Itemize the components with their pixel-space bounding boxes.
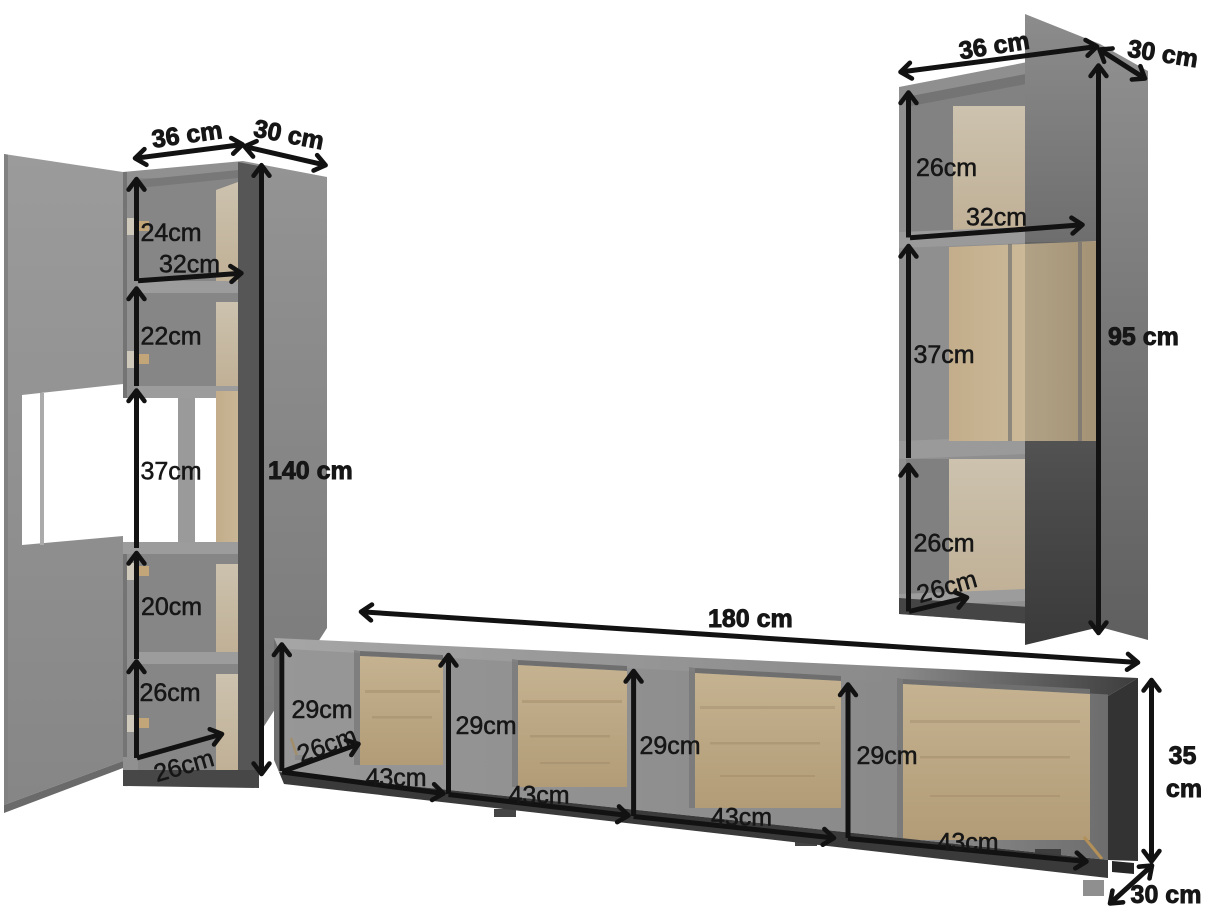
svg-text:cm: cm (1166, 775, 1202, 803)
svg-text:30 cm: 30 cm (1131, 881, 1202, 909)
svg-text:35: 35 (1169, 742, 1197, 770)
svg-text:37cm: 37cm (141, 458, 202, 486)
svg-text:43cm: 43cm (938, 829, 999, 857)
svg-text:26cm: 26cm (140, 679, 201, 707)
svg-text:29cm: 29cm (640, 732, 701, 760)
svg-text:29cm: 29cm (857, 742, 918, 770)
svg-text:37cm: 37cm (914, 341, 975, 369)
svg-text:32cm: 32cm (159, 251, 220, 279)
svg-text:180 cm: 180 cm (708, 605, 793, 633)
svg-text:26cm: 26cm (916, 154, 977, 182)
svg-text:22cm: 22cm (141, 323, 202, 351)
svg-text:29cm: 29cm (292, 696, 353, 724)
svg-text:20cm: 20cm (141, 593, 202, 621)
svg-text:43cm: 43cm (711, 804, 772, 832)
svg-text:95 cm: 95 cm (1108, 323, 1179, 351)
svg-text:43cm: 43cm (366, 764, 427, 792)
svg-text:29cm: 29cm (456, 712, 517, 740)
svg-text:32cm: 32cm (966, 204, 1027, 232)
svg-text:43cm: 43cm (509, 782, 570, 810)
svg-text:140 cm: 140 cm (268, 457, 353, 485)
svg-text:24cm: 24cm (141, 219, 202, 247)
svg-text:26cm: 26cm (914, 530, 975, 558)
